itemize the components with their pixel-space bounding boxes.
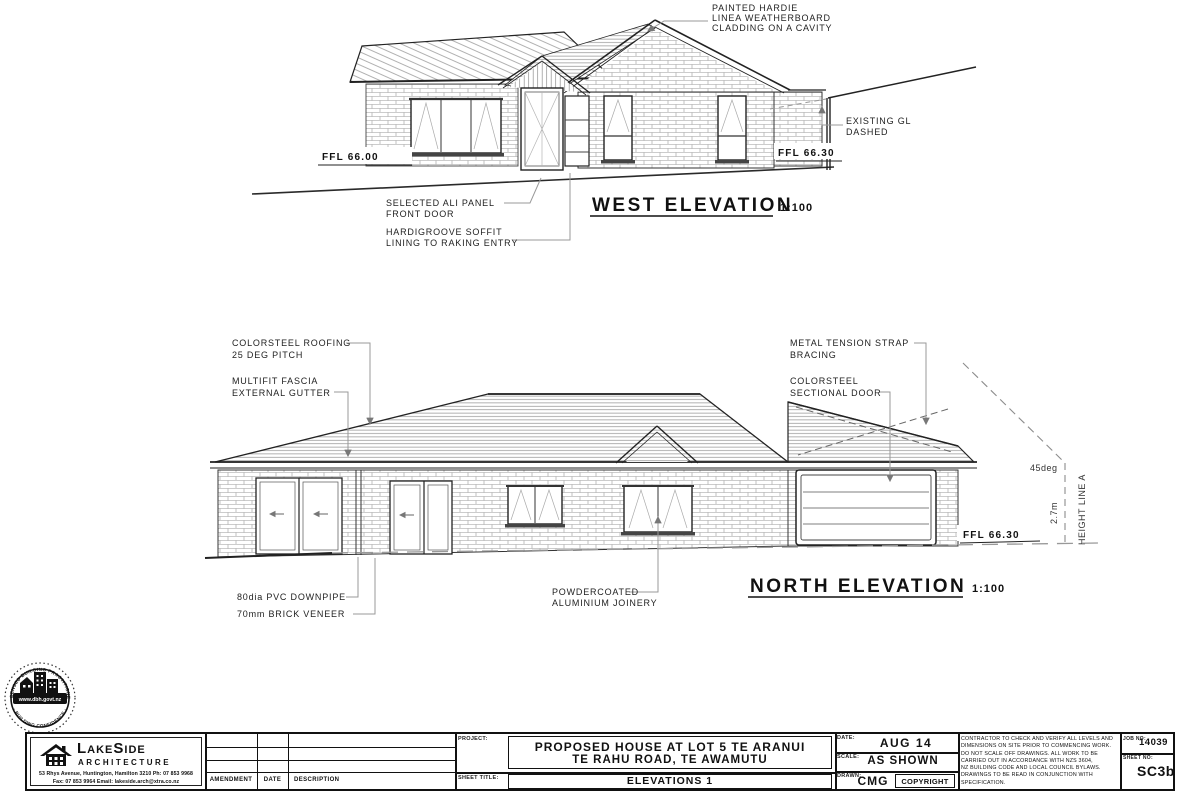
sheet-title-box: ELEVATIONS 1 [508, 774, 832, 789]
project-line1: PROPOSED HOUSE AT LOT 5 TE ARANUI [509, 740, 831, 754]
west-gable-window-left [601, 96, 635, 164]
west-left-window [408, 99, 504, 157]
north-left-door [256, 478, 342, 554]
annotation-text: HARDIGROOVE SOFFIT [386, 227, 502, 237]
north-ffl-label: FFL 66.30 [957, 525, 1040, 543]
west-door-side-panel [565, 96, 589, 166]
annotation-text: 25 DEG PITCH [232, 350, 303, 360]
north-garage-door [796, 470, 936, 545]
west-ffl-right-label: FFL 66.30 [774, 143, 842, 161]
west-elevation-drawing: FFL 66.00 FFL 66.30 PAINTED HARDIE LINEA… [252, 3, 976, 248]
date-label: DATE: [837, 735, 855, 741]
note-line: SPECIFICATION. [961, 780, 1117, 787]
date-value: AUG 14 [857, 736, 955, 750]
north-annotation-brick-veneer: 70mm BRICK VENEER [237, 558, 375, 619]
note-line: DRAWINGS TO BE READ IN CONJUNCTION WITH [961, 772, 1117, 779]
north-elevation-title: NORTH ELEVATION 1:100 [748, 576, 1005, 597]
drawing-sheet: FFL 66.00 FFL 66.30 PAINTED HARDIE LINEA… [0, 0, 1200, 793]
firm-address-line2: Fax: 07 853 9964 Email: lakeside.arch@xt… [31, 779, 201, 785]
annotation-text: 70mm BRICK VENEER [237, 609, 345, 619]
north-height-line: 45deg 2.7m HEIGHT LINE A [963, 363, 1087, 547]
annotation-text: PAINTED HARDIE [712, 3, 798, 13]
title-block: LakeSide ARCHITECTURE 53 Rhys Avenue, Hu… [25, 732, 1175, 791]
annotation-text: DASHED [846, 127, 888, 137]
annotation-text: COLORSTEEL [790, 376, 859, 386]
note-line: NZ BUILDING CODE AND LOCAL COUNCIL BYLAW… [961, 765, 1117, 772]
annotation-text: MULTIFIT FASCIA [232, 376, 318, 386]
ffl-text: FFL 66.30 [963, 530, 1020, 541]
note-line: CONTRACTOR TO CHECK AND VERIFY ALL LEVEL… [961, 736, 1117, 743]
project-box: PROPOSED HOUSE AT LOT 5 TE ARANUI TE RAH… [508, 736, 832, 769]
note-line: CARRIED OUT IN ACCORDANCE WITH NZS 3604, [961, 758, 1117, 765]
annotation-text: EXISTING GL [846, 116, 911, 126]
divider [205, 747, 455, 748]
annotation-text: METAL TENSION STRAP [790, 338, 909, 348]
amendment-header: AMENDMENT [205, 777, 257, 783]
annotation-text: FRONT DOOR [386, 209, 454, 219]
sheet-title-label: SHEET TITLE: [458, 775, 499, 781]
lakeside-logo-icon [39, 742, 73, 768]
ffl-left-text: FFL 66.00 [322, 152, 379, 163]
divider [205, 772, 455, 773]
note-line: DO NOT SCALE OFF DRAWINGS. ALL WORK TO B… [961, 751, 1117, 758]
west-front-door [521, 88, 563, 170]
scale-value: AS SHOWN [851, 755, 955, 767]
west-annotation-cladding: PAINTED HARDIE LINEA WEATHERBOARD CLADDI… [648, 3, 832, 33]
north-elevation-drawing: FFL 66.30 45deg 2.7m HEIGHT LINE A COLOR… [205, 338, 1100, 619]
stamp-website-text: www.dbh.govt.nz [18, 697, 62, 703]
west-ground-line [252, 167, 834, 194]
drawn-value: CMG [853, 774, 893, 788]
date-header: DATE [257, 777, 288, 783]
licensed-building-practitioner-stamp-icon: www.dbh.govt.nz LICENSED BUILDING PRACTI… [0, 0, 75, 733]
stamp-arc-top-text: LICENSED BUILDING PRACTITIONER [0, 0, 71, 699]
divider [835, 734, 837, 789]
contractor-notes: CONTRACTOR TO CHECK AND VERIFY ALL LEVEL… [961, 736, 1117, 787]
annotation-text: CLADDING ON A CAVITY [712, 23, 832, 33]
annotation-text: LINEA WEATHERBOARD [712, 13, 831, 23]
west-title-text: WEST ELEVATION [592, 195, 793, 216]
divider [455, 734, 457, 789]
firm-card: LakeSide ARCHITECTURE 53 Rhys Avenue, Hu… [30, 737, 202, 786]
north-scale-text: 1:100 [972, 583, 1005, 595]
sheet-no-label: SHEET NO: [1123, 755, 1153, 761]
north-garage-roof [788, 402, 974, 462]
north-entry-door [390, 481, 452, 554]
divider [288, 734, 289, 789]
north-fascia-gutter [210, 462, 977, 468]
divider [1120, 734, 1122, 789]
annotation-text: SECTIONAL DOOR [790, 388, 881, 398]
annotation-text: SELECTED ALI PANEL [386, 198, 495, 208]
height-line-text: HEIGHT LINE A [1077, 474, 1087, 545]
west-ffl-left-label: FFL 66.00 [316, 147, 412, 165]
copyright-box: COPYRIGHT [895, 774, 955, 788]
north-window-a [505, 486, 565, 528]
dim-height-text: 2.7m [1049, 502, 1059, 524]
west-annotation-existing-gl: EXISTING GL DASHED [822, 107, 911, 137]
description-header: DESCRIPTION [294, 777, 339, 783]
annotation-text: COLORSTEEL ROOFING [232, 338, 351, 348]
annotation-text: POWDERCOATED [552, 587, 639, 597]
drawing-canvas: FFL 66.00 FFL 66.30 PAINTED HARDIE LINEA… [0, 0, 1200, 793]
north-annotation-downpipe: 80dia PVC DOWNPIPE [237, 557, 358, 602]
divider [205, 760, 455, 761]
divider [958, 734, 960, 789]
west-gable-window-right [715, 96, 749, 164]
sheet-no-value: SC3b [1137, 763, 1175, 779]
firm-address-line1: 53 Rhys Avenue, Huntington, Hamilton 321… [31, 771, 201, 777]
job-no-value: 14039 [1139, 737, 1168, 748]
annotation-text: BRACING [790, 350, 837, 360]
north-title-text: NORTH ELEVATION [750, 576, 966, 597]
west-scale-text: 1:100 [780, 202, 813, 214]
note-line: DIMENSIONS ON SITE PRIOR TO COMMENCING W… [961, 743, 1117, 750]
firm-name: LakeSide [77, 740, 146, 757]
project-label: PROJECT: [458, 736, 488, 742]
dim-45deg-text: 45deg [1030, 463, 1058, 473]
project-line2: TE RAHU ROAD, TE AWAMUTU [509, 754, 831, 766]
annotation-text: LINING TO RAKING ENTRY [386, 238, 518, 248]
north-main-roof [215, 394, 788, 462]
annotation-text: ALUMINIUM JOINERY [552, 598, 657, 608]
west-elevation-title: WEST ELEVATION 1:100 [590, 195, 813, 216]
annotation-text: 80dia PVC DOWNPIPE [237, 592, 346, 602]
annotation-text: EXTERNAL GUTTER [232, 388, 331, 398]
firm-type: ARCHITECTURE [78, 758, 171, 767]
ffl-right-text: FFL 66.30 [778, 148, 835, 159]
